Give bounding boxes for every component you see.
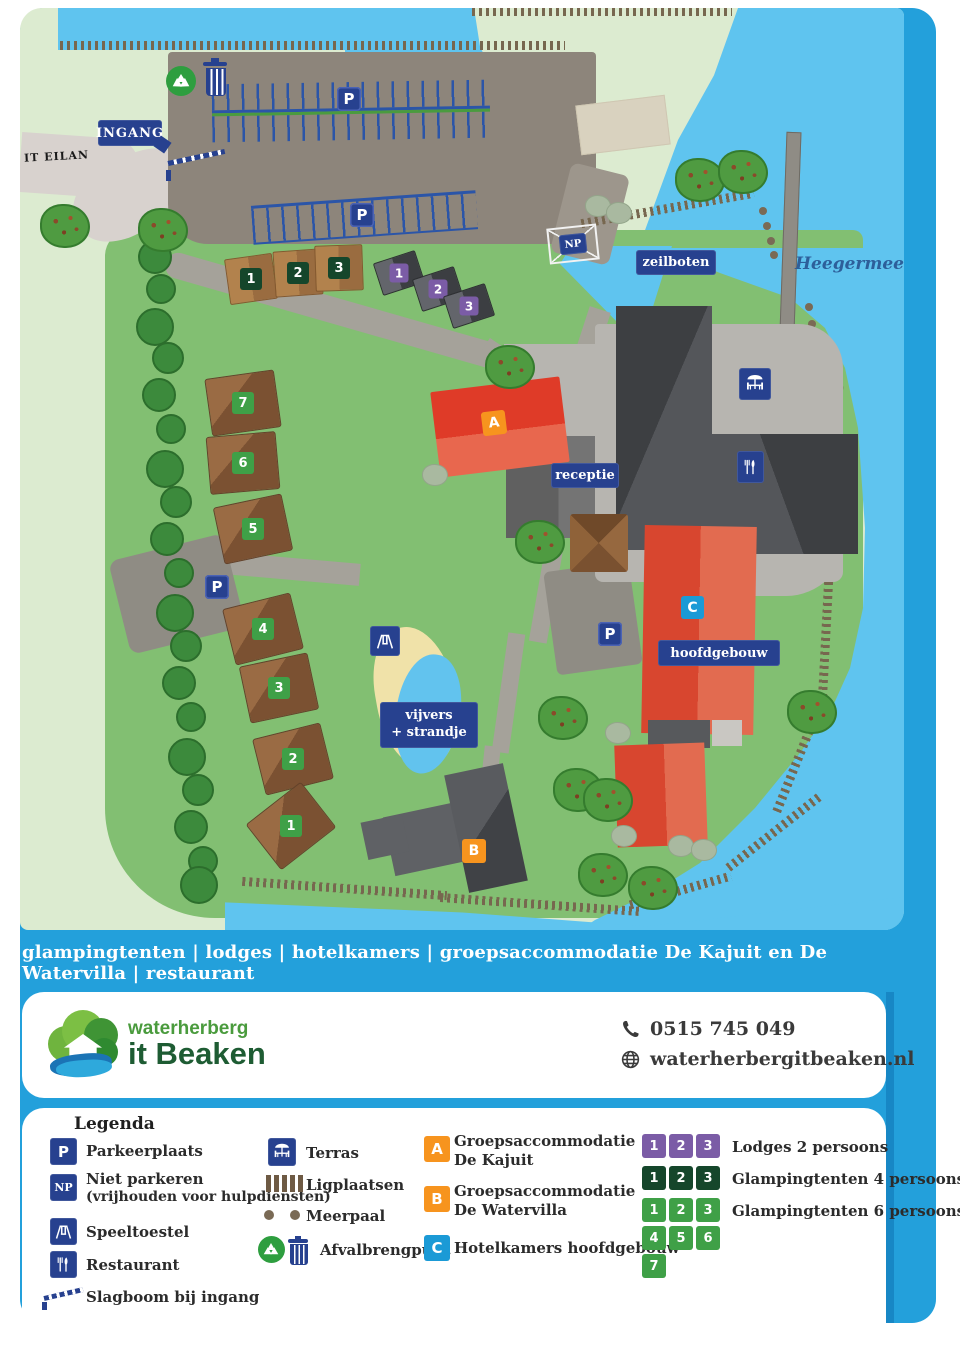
glamping-4p-number: 1	[240, 268, 262, 290]
site-map-page: 7654321123123PPPPINGANGIT EILANNPzeilbot…	[0, 0, 960, 1357]
restaurant-icon	[50, 1251, 77, 1278]
pale-bush	[422, 464, 448, 486]
glamping-6p-number: 4	[252, 618, 274, 640]
hoofdgebouw-sign: hoofdgebouw	[658, 640, 780, 666]
hoofdgebouw-building	[641, 525, 757, 735]
mooring-post	[770, 251, 778, 259]
glamping6-chip: 4	[642, 1226, 666, 1250]
mooring-post	[763, 222, 771, 230]
zeilboten-sign: zeilboten	[636, 250, 716, 275]
badge-c-icon: C	[424, 1235, 450, 1261]
legend-parkeerplaats: Parkeerplaats	[86, 1142, 203, 1160]
glamping-6p-number: 2	[282, 748, 304, 770]
logo	[48, 1010, 120, 1080]
parking-sign: P	[350, 203, 374, 227]
glamping6-chips-row1: 123	[642, 1198, 723, 1222]
legend-groeps-a-line1: Groepsaccommodatie	[454, 1132, 635, 1150]
mooring-post	[767, 237, 775, 245]
barrier-icon	[40, 1290, 84, 1310]
pale-bush	[611, 825, 637, 847]
phone-row: 0515 745 049	[620, 1018, 795, 1040]
recycle-icon	[258, 1236, 285, 1263]
glamping-6p-number: 5	[242, 518, 264, 540]
glamping6-chip: 5	[669, 1226, 693, 1250]
pale-bush	[691, 839, 717, 861]
pavilion-roof	[570, 514, 628, 572]
legend-niet-parkeren: Niet parkeren	[86, 1170, 204, 1188]
trash-icon	[288, 1236, 308, 1263]
trash-lid	[203, 62, 227, 66]
glamping-6p-number: 1	[280, 815, 302, 837]
barrier-post	[166, 170, 171, 181]
heegermeer-label: Heegermeer	[795, 254, 904, 274]
trash-icon	[203, 58, 227, 96]
glamping-6p-number: 6	[232, 452, 254, 474]
phone-number: 0515 745 049	[650, 1018, 795, 1040]
moorings-icon	[266, 1175, 306, 1192]
no-parking-sign: NP	[546, 223, 599, 264]
tree	[174, 810, 208, 844]
glamping6-chips-row3: 7	[642, 1254, 669, 1278]
pale-bush	[606, 202, 632, 224]
tree	[182, 774, 214, 806]
tree	[142, 378, 176, 412]
bush-tree	[138, 208, 188, 252]
boardwalk-top	[60, 41, 565, 50]
bush-tree	[578, 853, 628, 897]
glamping-6p-number: 7	[232, 392, 254, 414]
mooring-post-icon	[264, 1210, 274, 1220]
bush-tree	[485, 345, 535, 389]
phone-icon	[620, 1019, 641, 1040]
lodges2-chip: 1	[642, 1134, 666, 1158]
lodges2-chip: 3	[696, 1134, 720, 1158]
glamping6-chip: 6	[696, 1226, 720, 1250]
glamping6-chip: 7	[642, 1254, 666, 1278]
tree	[180, 866, 218, 904]
terrace-icon	[268, 1138, 296, 1166]
stall-ticks	[212, 111, 490, 142]
pale-bush	[668, 835, 694, 857]
legend-card: Legenda P Parkeerplaats NP Niet parkeren…	[22, 1108, 886, 1357]
restaurant-icon	[737, 451, 764, 483]
bush-tree	[40, 204, 90, 248]
website-url[interactable]: waterherbergitbeaken.nl	[650, 1048, 915, 1070]
lodge-2p-number: 1	[390, 264, 409, 283]
lodge-2p-number: 3	[460, 297, 479, 316]
globe-icon	[620, 1049, 641, 1070]
dock-edge	[472, 8, 732, 16]
glamping-4p-tent: 1	[224, 253, 278, 305]
glamping4-chip: 3	[696, 1166, 720, 1190]
legend-restaurant: Restaurant	[86, 1256, 179, 1274]
hoofdgebouw-link-light	[712, 720, 742, 746]
glamping-4p-number: 3	[328, 257, 350, 279]
lodges2-chips: 123	[642, 1134, 723, 1158]
brand-name-line2: it Beaken	[128, 1036, 266, 1072]
tree	[168, 738, 206, 776]
mooring-post	[759, 207, 767, 215]
tree	[150, 522, 184, 556]
legend-glamping6: Glampingtenten 6 persoons	[732, 1202, 960, 1220]
website-row: waterherbergitbeaken.nl	[620, 1048, 915, 1070]
bush-tree	[787, 690, 837, 734]
playground-icon	[50, 1218, 77, 1245]
tree	[164, 558, 194, 588]
glamping6-chip: 3	[696, 1198, 720, 1222]
glamping-6p-lodge: 7	[204, 369, 281, 436]
glamping6-chip: 2	[669, 1198, 693, 1222]
tree	[170, 630, 202, 662]
vijvers-sign-line1: vijvers	[405, 708, 452, 725]
tree	[162, 666, 196, 700]
playground-icon	[370, 626, 400, 656]
legend-meerpaal: Meerpaal	[306, 1207, 385, 1225]
legend-terras: Terras	[306, 1144, 359, 1162]
bush-tree	[538, 696, 588, 740]
bush-tree	[628, 866, 678, 910]
glamping-6p-number: 3	[268, 677, 290, 699]
badge-b: B	[462, 839, 486, 863]
parking-sign: P	[598, 622, 622, 646]
tree	[136, 308, 174, 346]
lodges2-chip: 2	[669, 1134, 693, 1158]
parking-sign: P	[205, 575, 229, 599]
legend-groeps-b-line1: Groepsaccommodatie	[454, 1182, 635, 1200]
pale-bush	[605, 722, 631, 744]
legend-groeps-a-line2: De Kajuit	[454, 1151, 534, 1169]
glamping4-chips: 123	[642, 1166, 723, 1190]
mooring-post-icon	[290, 1210, 300, 1220]
glamping6-chips-row2: 456	[642, 1226, 723, 1250]
tagline: glampingtenten | lodges | hotelkamers | …	[22, 934, 886, 992]
glamping6-chip: 1	[642, 1198, 666, 1222]
tree	[160, 486, 192, 518]
ingang-sign: INGANG	[98, 120, 162, 146]
parking-sign: P	[337, 87, 361, 111]
tree	[156, 594, 194, 632]
legend-lodges2: Lodges 2 persoons	[732, 1138, 888, 1156]
no-parking-icon: NP	[50, 1174, 77, 1201]
recycle-icon	[166, 66, 196, 96]
tree	[156, 414, 186, 444]
legend-speeltoestel: Speeltoestel	[86, 1223, 189, 1241]
badge-b-icon: B	[424, 1186, 450, 1212]
tree	[152, 342, 184, 374]
glamping-6p-lodge: 6	[206, 431, 281, 495]
bush-tree	[718, 150, 768, 194]
mooring-post	[805, 303, 813, 311]
badge-a: A	[481, 410, 508, 437]
tree	[146, 274, 176, 304]
terrace-icon	[739, 368, 771, 400]
glamping4-chip: 1	[642, 1166, 666, 1190]
parking-icon: P	[50, 1138, 77, 1165]
badge-c: C	[681, 596, 704, 619]
legend-slagboom: Slagboom bij ingang	[86, 1288, 259, 1306]
legend-title: Legenda	[74, 1114, 155, 1134]
trash-body	[206, 68, 226, 96]
legend-glamping4: Glampingtenten 4 persoons	[732, 1170, 960, 1188]
frame-edge-accent	[886, 992, 894, 1323]
glamping-4p-number: 2	[287, 262, 309, 284]
vijvers-sign-line2: + strandje	[391, 725, 467, 742]
badge-a-icon: A	[424, 1136, 450, 1162]
receptie-sign: receptie	[551, 463, 619, 488]
glamping-4p-tent: 3	[314, 244, 364, 292]
bush-tree	[515, 520, 565, 564]
tree	[146, 450, 184, 488]
brand-card: waterherberg it Beaken 0515 745 049 wate…	[22, 992, 886, 1098]
legend-groeps-b-line2: De Watervilla	[454, 1201, 567, 1219]
tree	[176, 702, 206, 732]
legend-ligplaatsen: Ligplaatsen	[306, 1176, 404, 1194]
campground-map: 7654321123123PPPPINGANGIT EILANNPzeilbot…	[20, 8, 904, 930]
no-parking-chip: NP	[559, 233, 588, 256]
vijvers-sign: vijvers+ strandje	[380, 702, 478, 748]
bush-tree	[583, 778, 633, 822]
glamping4-chip: 2	[669, 1166, 693, 1190]
